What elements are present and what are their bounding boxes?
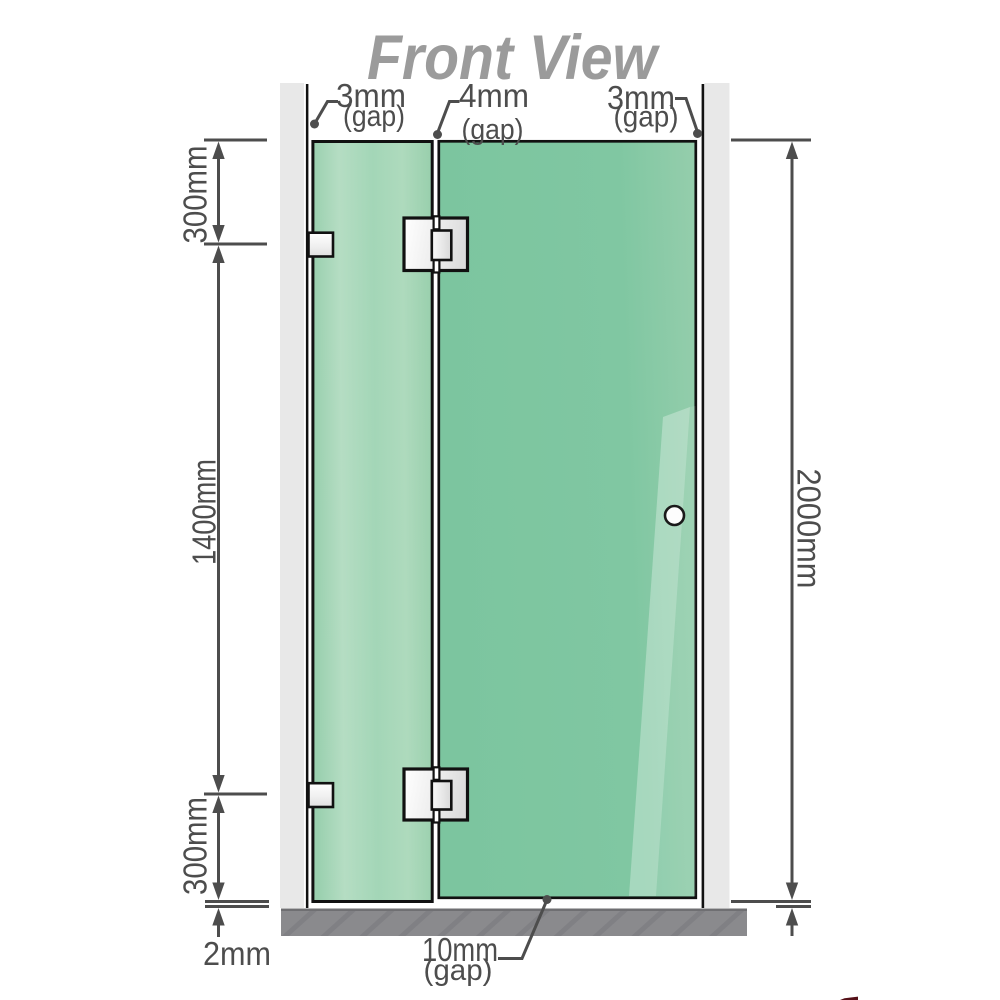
- svg-text:2000mm: 2000mm: [790, 469, 827, 589]
- svg-text:2mm: 2mm: [203, 935, 271, 972]
- svg-text:(gap): (gap): [462, 114, 524, 146]
- svg-text:300mm: 300mm: [177, 797, 214, 895]
- svg-text:(gap): (gap): [614, 101, 679, 134]
- svg-text:4mm: 4mm: [459, 77, 529, 114]
- svg-text:(gap): (gap): [343, 100, 405, 133]
- svg-text:300mm: 300mm: [177, 146, 214, 244]
- svg-text:(gap): (gap): [424, 954, 493, 987]
- svg-text:1400mm: 1400mm: [186, 459, 223, 565]
